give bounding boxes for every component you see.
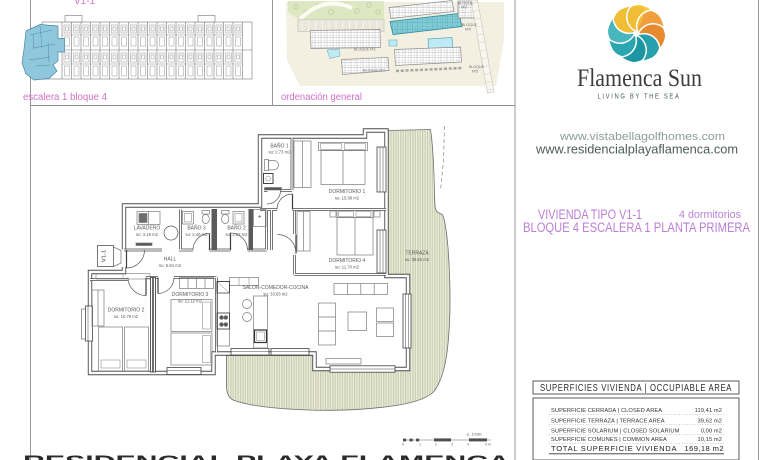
svg-text:1: 1 xyxy=(419,442,421,446)
svg-text:su: 5.94 m2: su: 5.94 m2 xyxy=(159,263,182,268)
svg-text:DORMITORIO 1: DORMITORIO 1 xyxy=(329,189,366,195)
svg-text:119,41 m2: 119,41 m2 xyxy=(695,408,722,414)
svg-text:DORMITORIO 4: DORMITORIO 4 xyxy=(329,258,366,264)
svg-text:ordenación general: ordenación general xyxy=(281,92,362,103)
svg-text:su: 11.12 m2: su: 11.12 m2 xyxy=(178,299,203,304)
svg-text:www.vistabellagolfhomes.com: www.vistabellagolfhomes.com xyxy=(559,131,725,143)
svg-text:Nº3: Nº3 xyxy=(461,6,467,10)
svg-text:V1-1: V1-1 xyxy=(74,0,96,7)
svg-text:SUPERFICIE TERRAZA | TERRACE: SUPERFICIE TERRAZA | TERRACE AREA xyxy=(551,418,665,424)
svg-text:su: 2.40 m2: su: 2.40 m2 xyxy=(186,232,209,237)
svg-text:escalera 1 bloque 4: escalera 1 bloque 4 xyxy=(23,92,107,103)
svg-text:3: 3 xyxy=(451,442,453,446)
svg-text:su: 39.62 m2: su: 39.62 m2 xyxy=(405,257,430,262)
svg-text:39,62 m2: 39,62 m2 xyxy=(697,418,722,424)
svg-text:BLOQUE Nº2: BLOQUE Nº2 xyxy=(363,69,385,73)
svg-text:DORMITORIO 2: DORMITORIO 2 xyxy=(108,308,145,314)
svg-text:2: 2 xyxy=(435,442,437,446)
svg-text:su: 15.68 m2: su: 15.68 m2 xyxy=(335,196,360,201)
svg-text:su: 2.73 m2: su: 2.73 m2 xyxy=(269,150,292,155)
svg-text:SALON-COMEDOR-COCINA: SALON-COMEDOR-COCINA xyxy=(243,285,310,291)
svg-text:e. 1/100: e. 1/100 xyxy=(467,432,482,437)
svg-text:SUPERFICIE SOLARIUM | CLOSED S: SUPERFICIE SOLARIUM | CLOSED SOLARIUM xyxy=(551,428,680,434)
svg-text:BLOQUE: BLOQUE xyxy=(469,65,485,69)
svg-text:BAÑO 3: BAÑO 3 xyxy=(187,225,206,232)
svg-text:www.residencialplayaflamenca.c: www.residencialplayaflamenca.com xyxy=(535,143,738,157)
svg-text:Nº4: Nº4 xyxy=(465,28,471,32)
svg-text:4: 4 xyxy=(467,442,469,446)
svg-text:LIVING BY THE SEA: LIVING BY THE SEA xyxy=(598,94,681,101)
svg-text:HALL: HALL xyxy=(164,257,177,263)
svg-text:10,15 m2: 10,15 m2 xyxy=(697,437,722,443)
svg-text:SUPERFICIES VIVIENDA | OCCUPIA: SUPERFICIES VIVIENDA | OCCUPIABLE AREA xyxy=(540,383,732,394)
svg-text:BAÑO 2: BAÑO 2 xyxy=(227,225,246,232)
svg-text:5 m: 5 m xyxy=(485,442,491,446)
svg-text:BLOQUE: BLOQUE xyxy=(462,23,478,27)
svg-text:DORMITORIO 3: DORMITORIO 3 xyxy=(172,292,209,298)
svg-text:0: 0 xyxy=(402,442,404,446)
svg-text:Nº5: Nº5 xyxy=(472,70,478,74)
svg-text:Flamenca Sun: Flamenca Sun xyxy=(577,65,702,92)
svg-text:BLOQUE Nº1: BLOQUE Nº1 xyxy=(354,48,376,52)
svg-text:BLOQUE 4 ESCALERA 1 PLANTA: BLOQUE 4 ESCALERA 1 PLANTA PRIMERA xyxy=(523,220,750,235)
svg-text:V1-1: V1-1 xyxy=(102,250,108,262)
svg-text:su: 11.70 m2: su: 11.70 m2 xyxy=(335,265,360,270)
svg-text:LAVADERO: LAVADERO xyxy=(134,226,161,232)
svg-text:su: 33.63 m2: su: 33.63 m2 xyxy=(263,292,288,297)
svg-text:SUPERFICIE CERRADA | CLOSED AR: SUPERFICIE CERRADA | CLOSED AREA xyxy=(551,408,662,414)
svg-text:su: 3.57 m2: su: 3.57 m2 xyxy=(226,232,249,237)
svg-text:su: 3.19 m2: su: 3.19 m2 xyxy=(136,232,159,237)
svg-text:169,18 m2: 169,18 m2 xyxy=(685,444,725,453)
svg-text:TOTAL SUPERFICIE VIVIENDA: TOTAL SUPERFICIE VIVIENDA xyxy=(551,444,677,453)
svg-text:SUPERFICIE COMUNES | COMMON AR: SUPERFICIE COMUNES | COMMON AREA xyxy=(551,437,667,443)
svg-text:su: 10.79 m2: su: 10.79 m2 xyxy=(114,314,139,319)
svg-text:RESIDENCIAL PLAYA FLAMENCA: RESIDENCIAL PLAYA FLAMENCA xyxy=(23,452,510,460)
svg-text:0,00 m2: 0,00 m2 xyxy=(701,428,722,434)
svg-text:TERRAZA: TERRAZA xyxy=(405,251,429,257)
svg-text:BAÑO 1: BAÑO 1 xyxy=(270,143,289,150)
